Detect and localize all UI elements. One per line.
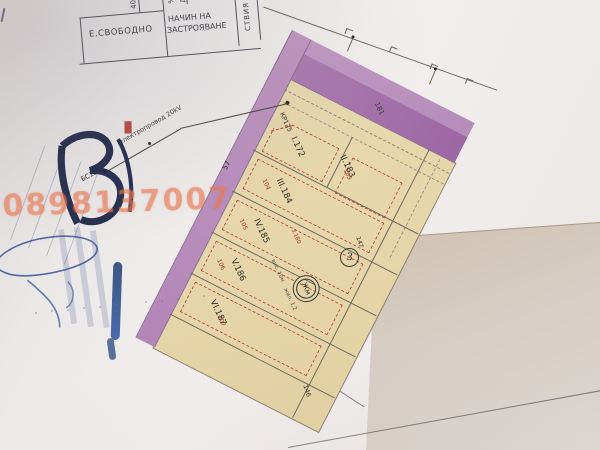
table-header-percent: %	[168, 0, 176, 4]
photo-of-cadastral-plan: КР125 I.172 II.183 103 III.184 104 IV.18…	[0, 0, 600, 450]
survey-point-dot	[433, 67, 437, 71]
watermark-phone-number: 0898137007	[2, 184, 232, 222]
zone-symbol: Жм	[300, 281, 312, 296]
table-header-40: 40	[130, 0, 138, 9]
table-line	[80, 17, 85, 63]
table-cell-method-2: ЗАСТРОЯВАНЕ	[167, 22, 227, 35]
survey-tick	[347, 38, 353, 51]
table-line	[80, 48, 261, 65]
survey-tick	[429, 69, 436, 84]
table-line	[138, 0, 141, 12]
table-line	[80, 10, 164, 18]
planning-table: Е.СВОБОДНО НАЧИН НА ЗАСТРОЯВАНЕ 40 % Дка…	[74, 0, 280, 80]
powerline-arrow-dot	[148, 142, 151, 145]
block-number: 3	[345, 252, 353, 263]
survey-mark	[465, 78, 474, 86]
dotted-specks	[35, 312, 37, 314]
table-cell-free: Е.СВОБОДНО	[89, 25, 153, 39]
table-side-text: СТВИЯ	[243, 2, 253, 32]
table-line	[233, 0, 239, 46]
table-header-dka: Дка	[180, 0, 187, 3]
table-line	[255, 0, 261, 40]
corner-mark	[1, 8, 6, 22]
